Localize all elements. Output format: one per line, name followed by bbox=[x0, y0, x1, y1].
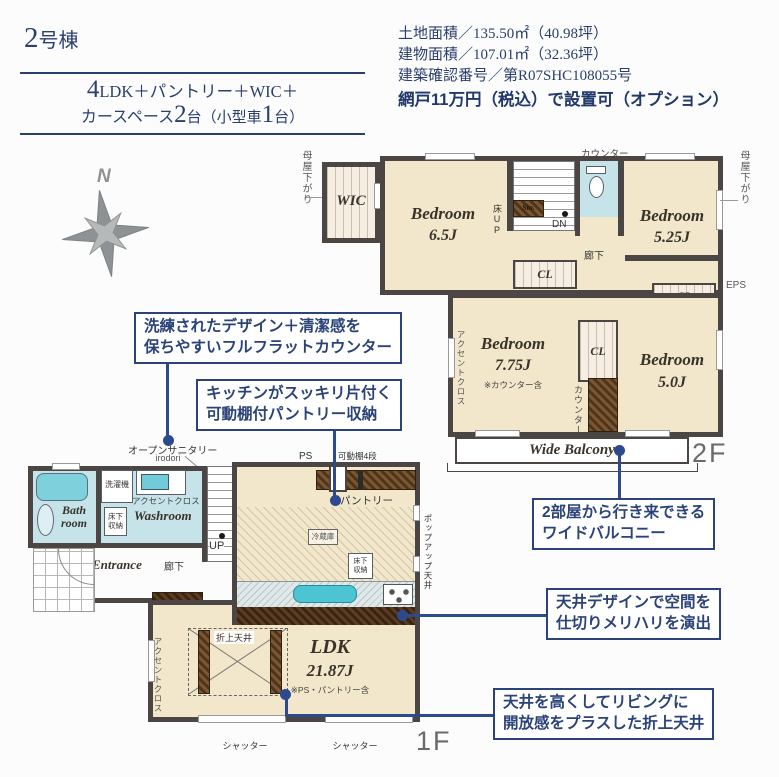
bedroom775-size: 7.75J bbox=[463, 357, 563, 375]
bedroom65-name: Bedroom bbox=[393, 204, 493, 224]
spec-small-car-count: 1 bbox=[262, 101, 275, 128]
dot-ceiling-design bbox=[397, 610, 408, 621]
moya-sagari-right-label: 母屋下がり bbox=[736, 150, 751, 205]
shutter-right-label: シャッター bbox=[313, 739, 397, 752]
callout-pantry-line1: キッチンがスッキリ片付く bbox=[206, 384, 392, 405]
window-kitchen-bottom bbox=[413, 556, 420, 572]
balcony-door-right bbox=[625, 430, 670, 437]
bathroom-label-line2: room bbox=[52, 517, 96, 530]
washroom-label: Washroom bbox=[134, 508, 192, 524]
floor-1f-label: 1F bbox=[416, 726, 452, 757]
spec-line-2: カースペース2台（小型車1台） bbox=[20, 101, 365, 129]
wide-balcony: Wide Balcony bbox=[455, 437, 689, 464]
shutter-left-label: シャッター bbox=[203, 739, 287, 752]
dot-pantry bbox=[330, 495, 341, 506]
callout-coffered-line2: 開放感をプラスした折上天井 bbox=[503, 714, 704, 735]
underfloor-kitchen-line1: 床下 bbox=[349, 557, 372, 566]
permit-number: 建築確認番号／第R07SHC108055号 bbox=[398, 66, 768, 87]
callout-flat-counter-line1: 洗練されたデザイン＋清潔感を bbox=[144, 317, 392, 338]
kitchen-wood-strip bbox=[237, 607, 415, 625]
counter-side-label: カウンター bbox=[572, 385, 585, 435]
washer-label: 洗濯機 bbox=[101, 479, 133, 490]
dot-coffered bbox=[280, 689, 291, 700]
connector-balcony bbox=[618, 450, 621, 505]
building-title: 2号棟 bbox=[24, 22, 79, 55]
bedroom65-size: 6.5J bbox=[393, 227, 493, 245]
stove-icon bbox=[383, 584, 413, 605]
closet-2f-center-label: CL bbox=[580, 322, 616, 380]
ps-shaft-box bbox=[329, 465, 347, 492]
pantry-shelf-divider bbox=[358, 470, 363, 490]
underfloor-washroom-line2: 収納 bbox=[105, 521, 126, 530]
bathtub-icon bbox=[36, 473, 88, 501]
ldk-pillar-left bbox=[198, 630, 210, 694]
balcony-door-left bbox=[475, 430, 520, 437]
eps-label: EPS bbox=[726, 280, 746, 291]
property-info: 土地面積／135.50㎡（40.98坪） 建物面積／107.01㎡（32.36坪… bbox=[398, 24, 768, 111]
compass-rose-icon bbox=[52, 180, 159, 287]
callout-flat-counter-line2: 保ちやすいフルフラットカウンター bbox=[144, 338, 392, 359]
underfloor-storage-kitchen: 床下 収納 bbox=[348, 553, 373, 579]
spec-tail-text: 台） bbox=[274, 110, 304, 126]
spec-car-text: カースペース bbox=[81, 109, 174, 126]
dot-flat-counter bbox=[163, 435, 174, 446]
hallway-1f-label: 廊下 bbox=[164, 558, 184, 573]
moya-right-leader-line bbox=[720, 200, 738, 201]
ldk-name: LDK bbox=[275, 636, 385, 659]
bedroom525-name: Bedroom bbox=[622, 206, 722, 226]
callout-wide-balcony: 2部屋から行き来できる ワイドバルコニー bbox=[532, 498, 715, 550]
hallway-2f-label: 廊下 bbox=[584, 247, 604, 262]
callout-pantry-storage: キッチンがスッキリ片付く 可動棚付パントリー収納 bbox=[196, 379, 402, 431]
callout-coffered-line1: 天井を高くしてリビングに bbox=[503, 693, 704, 714]
accent-cloth-washroom-label: アクセントクロス bbox=[132, 495, 200, 507]
window-bathroom bbox=[52, 463, 80, 470]
storage-2f-box: Sto. bbox=[513, 200, 544, 217]
connector-flat-counter bbox=[166, 360, 169, 442]
bedroom775-name: Bedroom bbox=[463, 334, 563, 354]
counter-top-label: カウンター bbox=[581, 146, 629, 160]
toilet-bowl-2f-icon bbox=[589, 176, 604, 198]
underfloor-kitchen-line2: 収納 bbox=[349, 566, 372, 575]
stair-pole-dot-1f bbox=[219, 533, 225, 539]
callout-flat-counter: 洗練されたデザイン＋清潔感を 保ちやすいフルフラットカウンター bbox=[134, 312, 402, 364]
header-rule-top bbox=[20, 72, 365, 74]
balcony-railing bbox=[447, 463, 698, 472]
callout-ceiling-line2: 仕切りメリハリを演出 bbox=[556, 614, 711, 635]
ps-label: PS bbox=[299, 451, 312, 462]
dot-balcony bbox=[614, 445, 625, 456]
header-rule-bottom bbox=[20, 133, 365, 135]
movable-shelf-label: 可動棚4段 bbox=[338, 450, 377, 462]
counter-2f-box bbox=[588, 378, 618, 432]
callout-balcony-line1: 2部屋から行き来できる bbox=[542, 503, 705, 524]
spec-ldk-text: LDK＋パントリー＋WIC＋ bbox=[99, 82, 298, 101]
wic-label: WIC bbox=[327, 167, 375, 235]
spec-line-1: 4LDK＋パントリー＋WIC＋ bbox=[20, 76, 365, 104]
kitchen-sink-icon bbox=[293, 585, 357, 603]
open-sanitary-sub-label: irodori bbox=[128, 453, 208, 463]
fridge-label: 冷蔵庫 bbox=[309, 530, 337, 544]
callout-ceiling-design: 天井デザインで空間を 仕切りメリハリを演出 bbox=[546, 588, 721, 640]
connector-pantry bbox=[333, 425, 336, 502]
connector-coffered-h bbox=[285, 714, 495, 717]
window-ldk-bottom-left bbox=[198, 715, 286, 723]
screen-option-note: 網戸11万円（税込）で設置可（オプション） bbox=[398, 89, 768, 111]
callout-pantry-line2: 可動棚付パントリー収納 bbox=[206, 405, 392, 426]
callout-coffered: 天井を高くしてリビングに 開放感をプラスした折上天井 bbox=[493, 688, 714, 740]
coffered-ceiling-label: 折上天井 bbox=[214, 631, 254, 644]
land-area: 土地面積／135.50㎡（40.98坪） bbox=[398, 24, 768, 45]
callout-balcony-line2: ワイドバルコニー bbox=[542, 524, 705, 545]
wide-balcony-label: Wide Balcony bbox=[457, 439, 687, 461]
accent-cloth-ldk-label: アクセントクロス bbox=[152, 637, 164, 713]
fridge-box: 冷蔵庫 bbox=[308, 529, 338, 545]
connector-ceiling-design bbox=[402, 614, 548, 617]
underfloor-washroom-line1: 床下 bbox=[105, 512, 126, 521]
stairs-up-label: UP bbox=[209, 540, 224, 552]
bedroom775-note: ※カウンター含 bbox=[463, 379, 563, 391]
bathroom-label: Bath room bbox=[52, 504, 96, 530]
pantry-label: パントリー bbox=[340, 493, 393, 508]
spec-small-car-text: 台（小型車 bbox=[187, 110, 262, 126]
window-kitchen-top bbox=[413, 505, 420, 521]
window-bedroom525 bbox=[645, 153, 695, 160]
callout-ceiling-line1: 天井デザインで空間を bbox=[556, 593, 711, 614]
building-number: 2 bbox=[24, 22, 39, 54]
window-2f-left bbox=[448, 338, 455, 378]
bedroom525-size: 5.25J bbox=[622, 229, 722, 247]
entrance-label: Entrance bbox=[92, 557, 142, 573]
building-area: 建物面積／107.01㎡（32.36坪） bbox=[398, 45, 768, 66]
bedroom50-name: Bedroom bbox=[620, 350, 724, 370]
spec-car-count: 2 bbox=[174, 101, 187, 128]
floor-2f-label: 2F bbox=[692, 438, 728, 469]
room-wic: WIC bbox=[322, 162, 380, 243]
underfloor-storage-washroom: 床下 収納 bbox=[104, 507, 127, 536]
popup-ceiling-label: ポップアップ天井 bbox=[422, 514, 434, 590]
building-suffix: 号棟 bbox=[39, 30, 79, 52]
wall-bedroom525-bottom bbox=[625, 255, 723, 261]
kitchen-floor bbox=[237, 507, 415, 583]
closet-2f-center: CL bbox=[578, 320, 618, 382]
spec-ldk-count: 4 bbox=[87, 76, 100, 103]
stairs-down-label: DN bbox=[552, 219, 566, 230]
storage-2f-label: Sto. bbox=[514, 201, 543, 215]
closet-2f-left-label: CL bbox=[515, 262, 575, 287]
ldk-size: 21.87J bbox=[275, 661, 385, 681]
bedroom50-size: 5.0J bbox=[620, 374, 724, 392]
closet-2f-left: CL bbox=[513, 260, 577, 289]
wall-entrance-bottom bbox=[95, 598, 155, 603]
floor-plan-flyer: 2号棟 4LDK＋パントリー＋WIC＋ カースペース2台（小型車1台） 土地面積… bbox=[0, 0, 779, 777]
toilet-tank-2f-icon bbox=[586, 166, 606, 174]
window-bedroom65 bbox=[425, 153, 475, 160]
vanity-sink-icon bbox=[141, 474, 169, 490]
stair-pole-dot-2f bbox=[562, 211, 568, 217]
